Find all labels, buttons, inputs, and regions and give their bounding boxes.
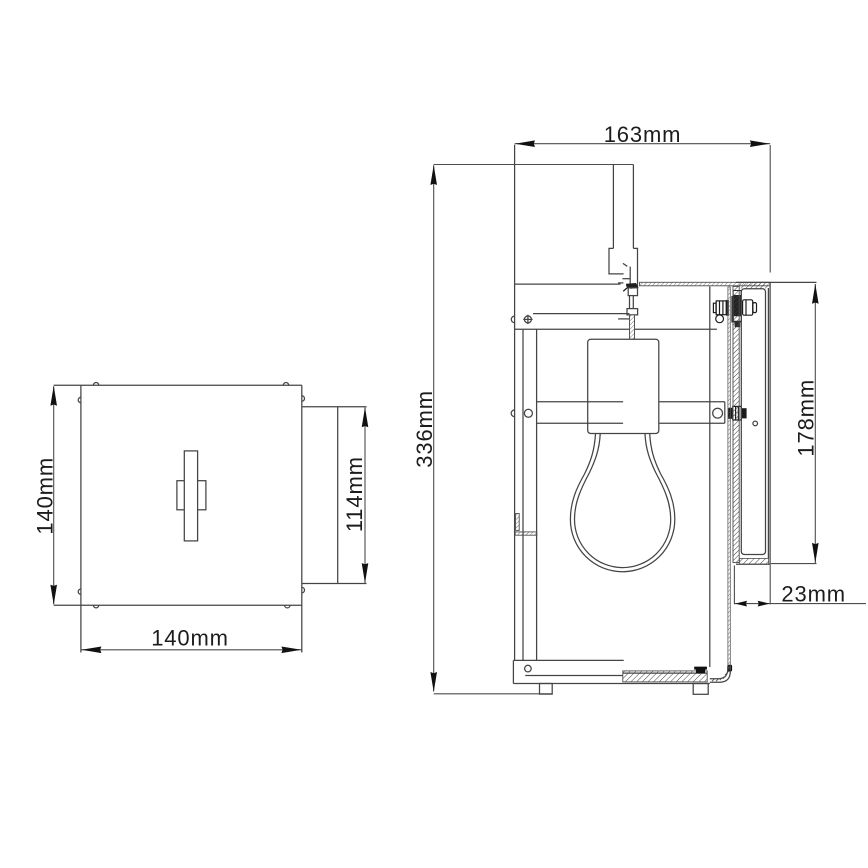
svg-text:23mm: 23mm — [781, 581, 846, 606]
svg-text:178mm: 178mm — [793, 379, 818, 457]
svg-text:140mm: 140mm — [151, 625, 229, 650]
svg-text:114mm: 114mm — [342, 456, 367, 532]
svg-text:140mm: 140mm — [33, 457, 58, 535]
svg-text:336mm: 336mm — [412, 390, 437, 468]
svg-text:163mm: 163mm — [604, 122, 682, 147]
